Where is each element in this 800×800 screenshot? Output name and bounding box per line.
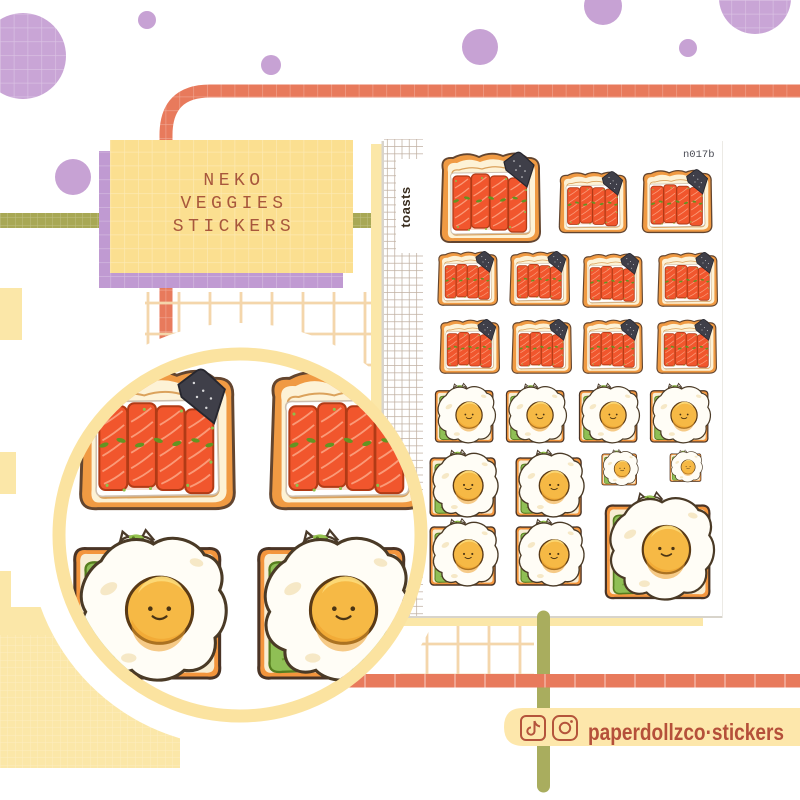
svg-text:paperdollzco·stickers: paperdollzco·stickers bbox=[588, 719, 784, 745]
svg-text:n017b: n017b bbox=[683, 149, 715, 161]
svg-text:VEGGIES: VEGGIES bbox=[180, 194, 287, 214]
svg-text:toasts: toasts bbox=[398, 186, 413, 227]
svg-text:STICKERS: STICKERS bbox=[173, 217, 295, 237]
svg-text:NEKO: NEKO bbox=[203, 171, 264, 191]
